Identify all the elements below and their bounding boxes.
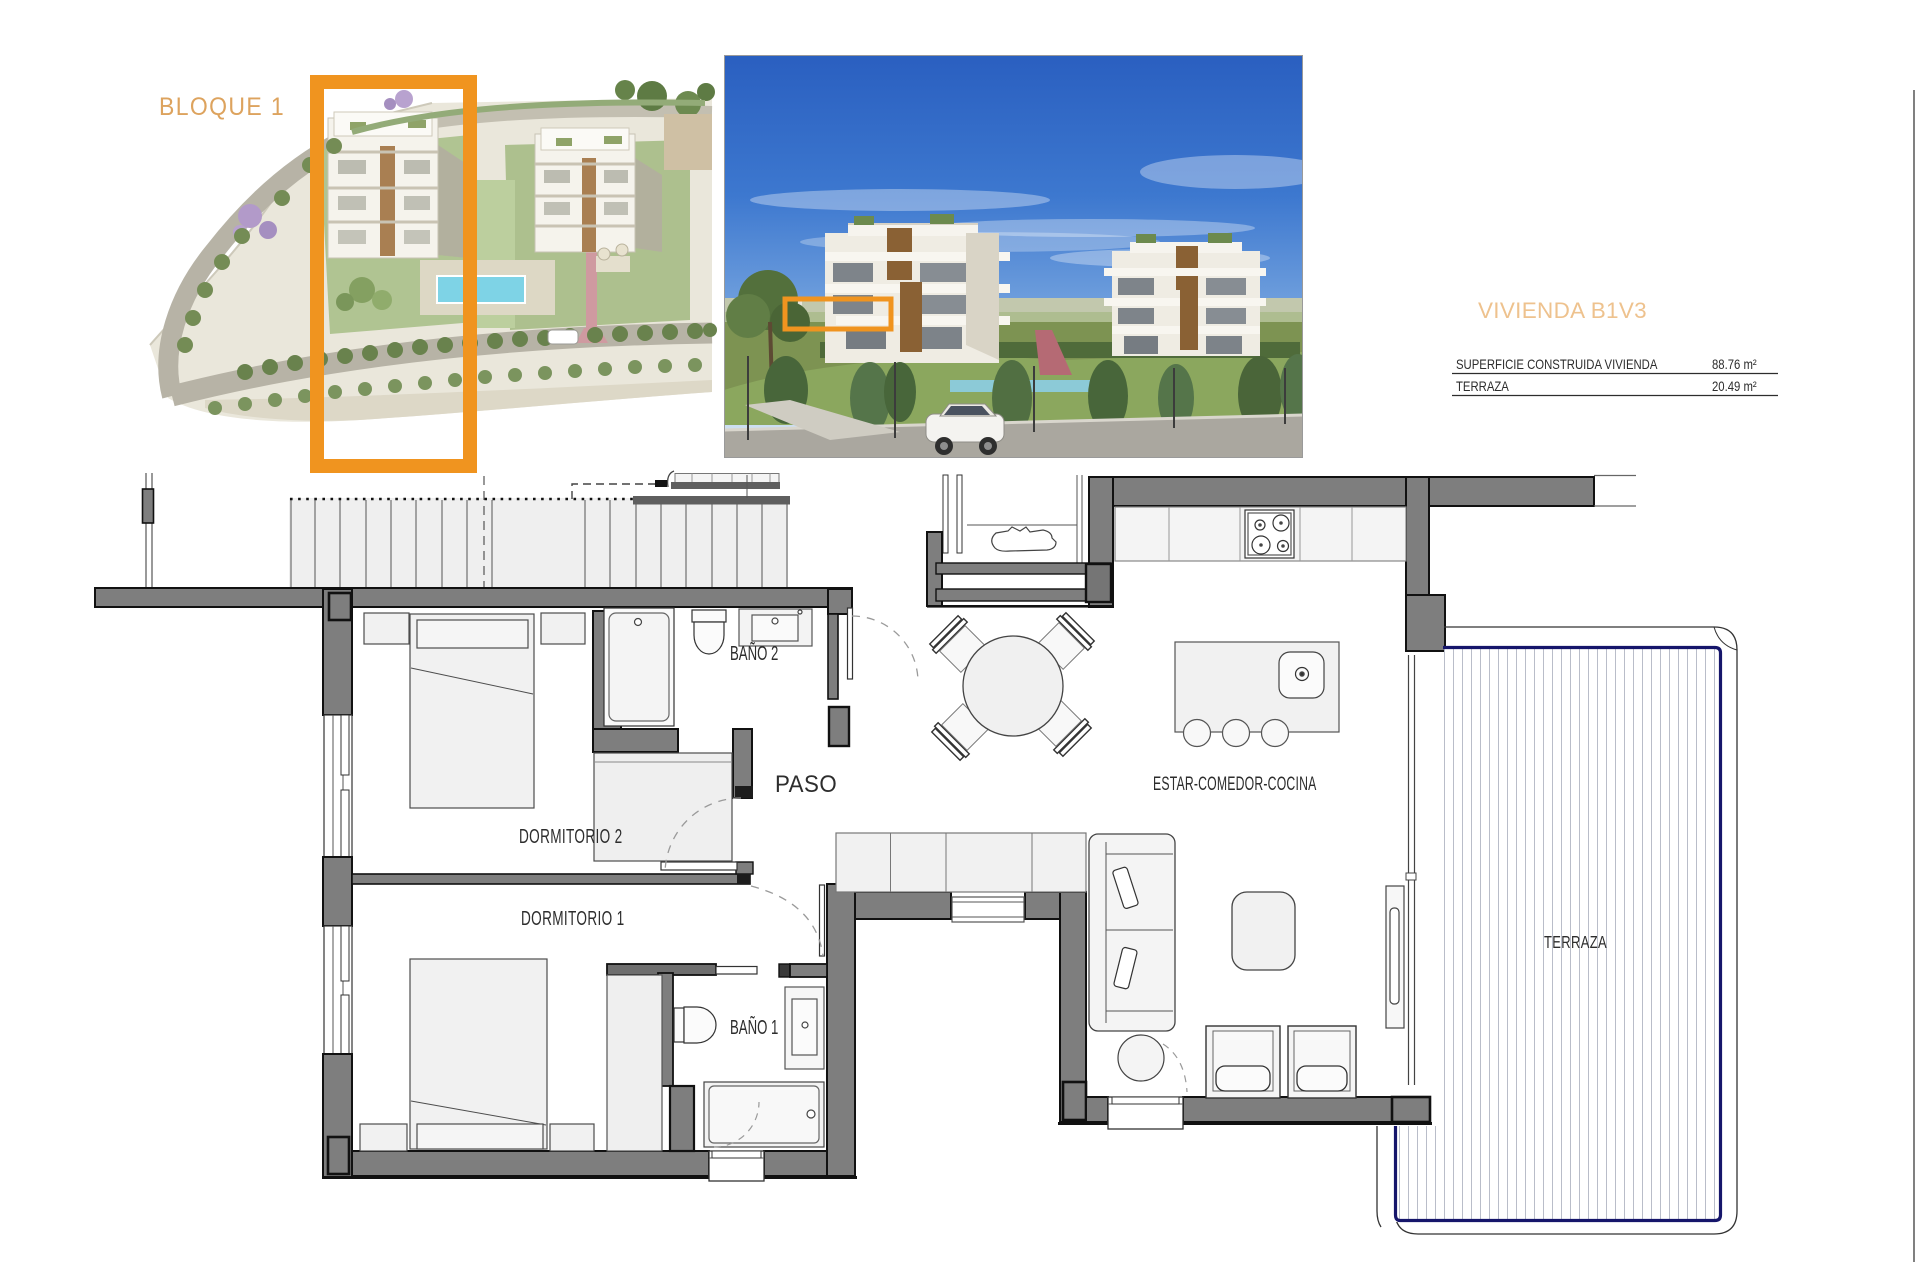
svg-text:DORMITORIO 1: DORMITORIO 1 bbox=[521, 907, 625, 929]
svg-text:ESTAR-COMEDOR-COCINA: ESTAR-COMEDOR-COCINA bbox=[1153, 775, 1317, 795]
svg-text:TERRAZA: TERRAZA bbox=[1544, 933, 1607, 953]
svg-text:VIVIENDA B1V3: VIVIENDA B1V3 bbox=[1478, 298, 1647, 323]
svg-text:20.49 m²: 20.49 m² bbox=[1712, 379, 1757, 394]
svg-text:PASO: PASO bbox=[775, 770, 837, 797]
svg-text:BLOQUE 1: BLOQUE 1 bbox=[159, 93, 285, 121]
svg-text:TERRAZA: TERRAZA bbox=[1456, 379, 1509, 394]
svg-text:BAÑO 2: BAÑO 2 bbox=[730, 641, 778, 665]
svg-text:BAÑO 1: BAÑO 1 bbox=[730, 1015, 778, 1039]
svg-text:SUPERFICIE CONSTRUIDA VIVIENDA: SUPERFICIE CONSTRUIDA VIVIENDA bbox=[1456, 357, 1658, 372]
svg-text:DORMITORIO 2: DORMITORIO 2 bbox=[519, 825, 623, 847]
svg-text:88.76 m²: 88.76 m² bbox=[1712, 357, 1757, 372]
